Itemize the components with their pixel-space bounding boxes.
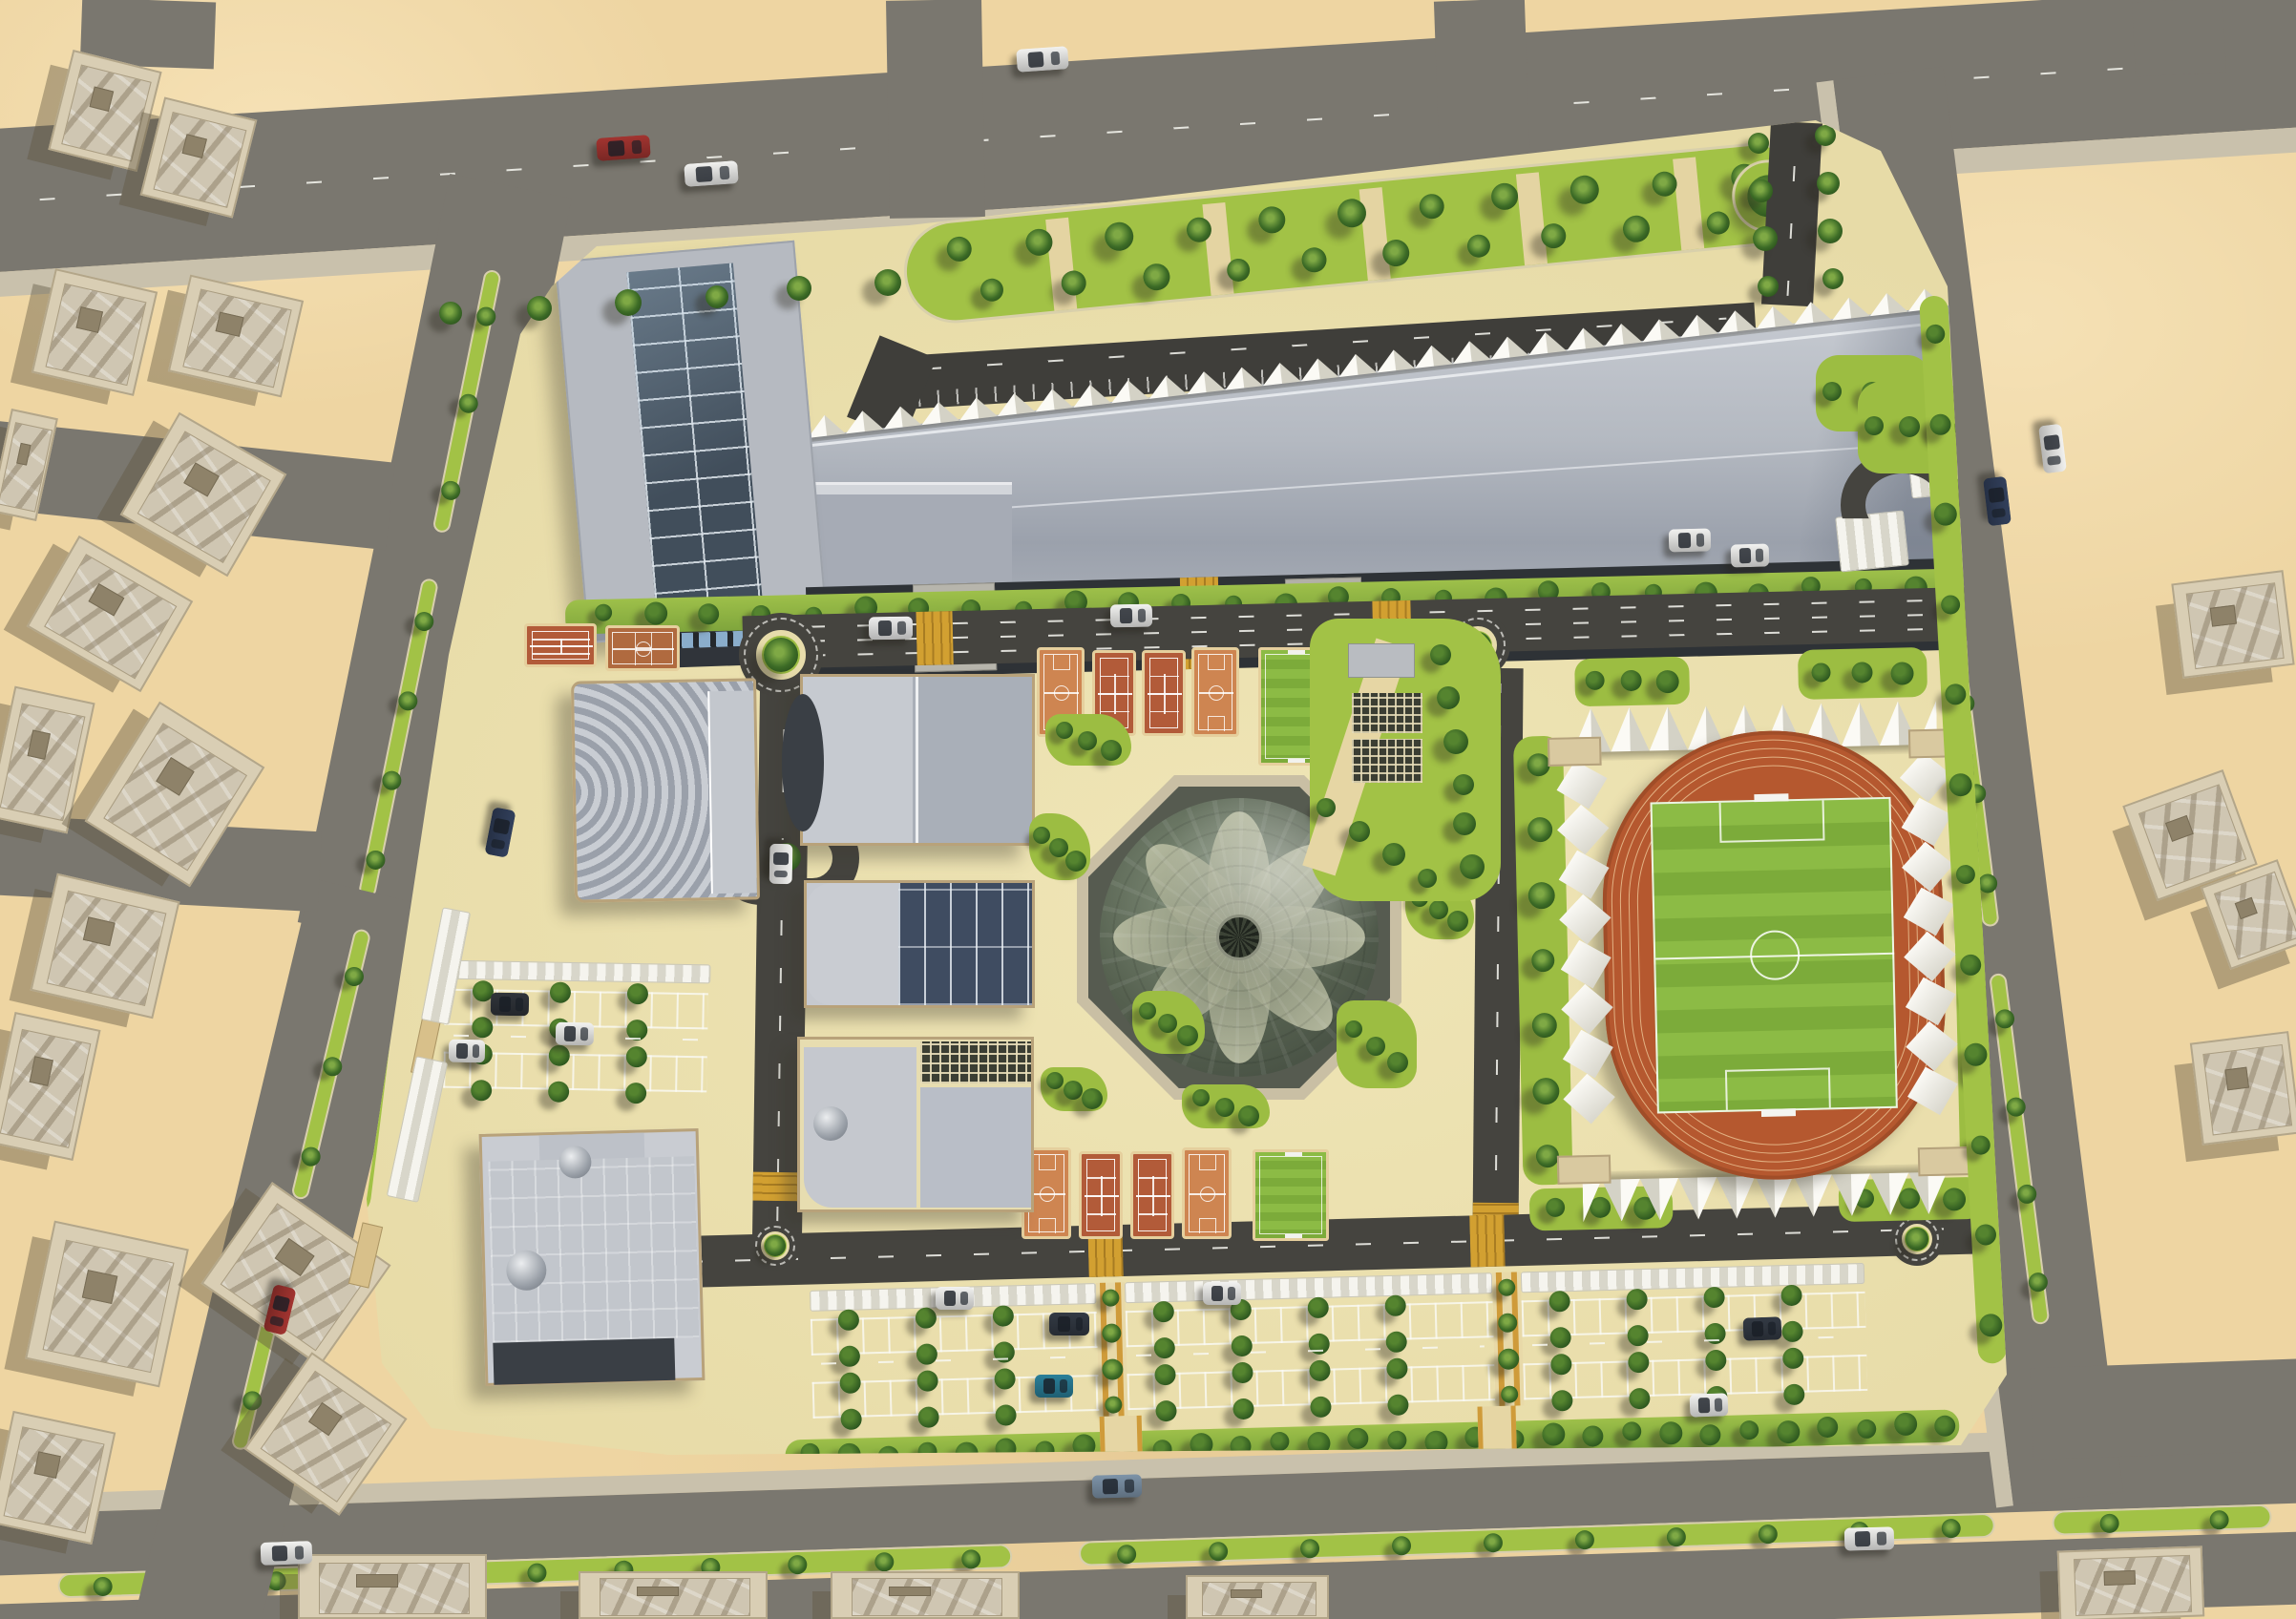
tree [1101, 740, 1122, 761]
tree [626, 1046, 647, 1067]
palm-tree [1527, 881, 1555, 909]
auditorium-fan-roof [571, 678, 760, 902]
curved-west-facade [782, 694, 824, 831]
tree [1139, 1002, 1156, 1020]
car-glass [960, 1292, 967, 1305]
tree [1453, 812, 1476, 835]
tree [1447, 911, 1468, 932]
court-key [1039, 1155, 1056, 1170]
court-serviceline [1139, 1213, 1168, 1215]
roof-hatch [1231, 1589, 1262, 1598]
tree [1033, 827, 1050, 844]
tree [1382, 843, 1405, 866]
car-glass [491, 839, 505, 851]
court-lines [1086, 1159, 1115, 1231]
tree [1232, 1362, 1253, 1384]
car-glass [1988, 487, 2005, 503]
palm-tree [960, 1549, 980, 1569]
car-glass [516, 998, 522, 1011]
roof-seam [916, 677, 918, 843]
tree [1783, 1384, 1805, 1406]
tree [1443, 729, 1468, 754]
football-pitch [1651, 797, 1898, 1114]
palm-tree [1300, 1539, 1320, 1559]
court-lines [532, 631, 589, 660]
tree [1780, 1285, 1802, 1307]
car [449, 1040, 485, 1063]
roof-hatch [34, 1451, 62, 1479]
palm-tree [1575, 1530, 1595, 1550]
stadium-pavilion [1918, 1146, 1972, 1176]
tree [800, 1443, 820, 1463]
lot-divider-walkway [1096, 1282, 1128, 1417]
garden-walkway [1673, 158, 1704, 251]
garden-walkway [1045, 218, 1077, 311]
car [1049, 1313, 1089, 1335]
district-building [25, 1221, 189, 1388]
tree [1155, 1400, 1177, 1422]
palm-tree [2099, 1514, 2119, 1534]
car-glass [499, 997, 511, 1012]
car [1092, 1474, 1143, 1498]
pitch-centercircle [1750, 930, 1801, 980]
tree [1192, 1089, 1210, 1106]
court-key [635, 633, 652, 648]
parking-stall-row [1522, 1292, 1866, 1336]
tree [1072, 1434, 1096, 1458]
car-glass [1058, 1316, 1070, 1332]
tree [1238, 1105, 1259, 1126]
tree [1899, 1188, 1920, 1209]
tree [1551, 1390, 1573, 1412]
garden-kiosk [1348, 643, 1415, 678]
palm-tree [1818, 219, 1843, 243]
tree [1705, 1350, 1727, 1372]
tree [627, 983, 648, 1004]
car-glass [294, 1545, 304, 1559]
tree [1366, 1037, 1385, 1056]
car-glass [493, 818, 511, 835]
roof-panels [488, 1156, 699, 1343]
district-roof [2074, 1555, 2192, 1615]
tree [1822, 382, 1842, 401]
tree [644, 601, 668, 625]
court-lines [1138, 1159, 1167, 1231]
tree [1622, 1421, 1642, 1441]
tree [1941, 595, 1961, 615]
tree [1460, 854, 1485, 879]
tennis-court [1130, 1151, 1174, 1239]
tree [1857, 1419, 1877, 1440]
aerial-site-plan [0, 0, 2296, 1619]
tree [471, 1080, 492, 1101]
car-glass [1696, 534, 1704, 547]
court-key [635, 650, 652, 665]
tree [1955, 865, 1975, 885]
running-track [1599, 727, 1949, 1184]
court-serviceline [533, 639, 590, 641]
car-glass [580, 1027, 587, 1041]
car-glass [608, 140, 625, 157]
car [491, 993, 529, 1017]
tree [1064, 1081, 1083, 1100]
district-building [831, 1571, 1020, 1619]
tree [1960, 954, 1982, 976]
tree [1620, 670, 1641, 691]
tennis-court [1079, 1151, 1123, 1239]
roof-hatch [2225, 1067, 2249, 1090]
stadium-garden [1574, 657, 1690, 707]
tree [1310, 1397, 1332, 1419]
district-roof [2138, 784, 2246, 889]
palm-tree [874, 1552, 895, 1572]
pitch-goal [1761, 1108, 1796, 1117]
court-serviceline [1087, 1177, 1116, 1179]
tree [993, 1305, 1015, 1327]
district-roof [2203, 1044, 2292, 1136]
roof-hatch [82, 1271, 117, 1305]
district-roof [46, 284, 147, 386]
court-serviceline [1152, 1176, 1154, 1217]
trellis-block [1352, 693, 1422, 733]
car-glass [272, 1294, 290, 1312]
tree [548, 1082, 569, 1103]
penalty-box [1725, 1067, 1831, 1109]
tree [1190, 1433, 1213, 1457]
tree [1082, 1088, 1103, 1109]
tree [1158, 1014, 1177, 1033]
car-glass [631, 140, 642, 155]
southwest-hall [479, 1128, 706, 1386]
pitch-goal [1288, 759, 1305, 763]
court-serviceline [1101, 676, 1129, 678]
car [1690, 1393, 1729, 1417]
tennis-court [524, 623, 597, 667]
district-roof [0, 1029, 91, 1148]
tree [1387, 1394, 1409, 1416]
tree [955, 1441, 979, 1465]
palm-tree [1941, 1519, 1961, 1539]
car [2038, 424, 2067, 474]
palm-tree [1484, 1533, 1504, 1553]
roof-hatch [2210, 605, 2237, 627]
palm-tree [1706, 210, 1731, 235]
palm-tree [787, 276, 811, 301]
car-glass [1125, 1480, 1134, 1493]
parking-canopy [1521, 1263, 1864, 1293]
tennis-court [1142, 650, 1186, 736]
palm-tree [527, 296, 552, 321]
court-key [1208, 655, 1225, 670]
palm-tree [439, 302, 462, 325]
district-roof [2214, 872, 2296, 960]
tree [1948, 772, 1972, 796]
car-glass [1739, 548, 1751, 563]
skylight-west-wing [555, 241, 828, 643]
tree [1626, 1289, 1648, 1311]
training-pitch [1253, 1149, 1329, 1241]
tree [550, 982, 571, 1003]
district-roof [4, 1426, 105, 1533]
palm-tree [874, 269, 901, 296]
car-glass [1027, 52, 1043, 68]
roof-hatch [356, 1574, 398, 1587]
tree [1542, 1422, 1566, 1446]
court-serviceline [1101, 1176, 1103, 1217]
court-serviceline [533, 653, 590, 655]
car [1743, 1316, 1782, 1340]
tree [1386, 1358, 1408, 1380]
palm-tree [1532, 1077, 1560, 1104]
palm-tree [1498, 1348, 1520, 1370]
ne-shade-canopy [1835, 510, 1909, 572]
plaza-garden [1029, 813, 1090, 880]
palm-tree [1621, 215, 1651, 244]
parking-stall-row [1127, 1364, 1495, 1410]
indoor-hall-west [800, 674, 1035, 846]
car-glass [1991, 508, 2006, 518]
car-glass [1120, 608, 1132, 623]
tree [1970, 1135, 1991, 1155]
court-lines [1198, 654, 1232, 730]
palm-tree [1532, 1013, 1558, 1039]
car-glass [1076, 1317, 1084, 1331]
tree [1154, 1364, 1176, 1386]
palm-tree [1104, 221, 1135, 252]
car-glass [1768, 1322, 1776, 1335]
tree [1387, 1431, 1407, 1451]
roof-hatch [889, 1587, 931, 1596]
car-glass [272, 1545, 288, 1562]
tree [1699, 1424, 1721, 1446]
penalty-box [1719, 800, 1825, 842]
roof-light [807, 883, 898, 1005]
tree [877, 1445, 899, 1467]
road-stub [2132, 0, 2226, 76]
court-centercircle [1209, 685, 1224, 701]
road-stub [886, 0, 985, 219]
tree [698, 603, 719, 624]
court-serviceline [1150, 711, 1179, 713]
palm-tree [1257, 205, 1287, 235]
tree [625, 1083, 646, 1104]
hall-with-pergola [797, 1037, 1034, 1212]
roof-block [707, 690, 757, 894]
car [1110, 604, 1152, 628]
palm-tree [1753, 226, 1778, 251]
palm-tree [979, 278, 1004, 303]
tree [1964, 1042, 1988, 1066]
car-glass [696, 166, 713, 182]
palm-tree [94, 1577, 114, 1597]
district-roof [44, 554, 178, 679]
tree [1230, 1436, 1252, 1458]
palm-tree [1142, 263, 1171, 292]
tree [1582, 1425, 1604, 1447]
car [1035, 1375, 1073, 1398]
car [1016, 46, 1069, 73]
car-glass [897, 621, 906, 635]
car [1731, 543, 1770, 567]
tree [1270, 1432, 1290, 1452]
car-glass [1715, 1398, 1722, 1412]
tree [1629, 1388, 1651, 1410]
tree [1659, 1421, 1683, 1445]
palm-tree [788, 1555, 808, 1575]
tree [1934, 1416, 1956, 1438]
tree [1894, 1413, 1918, 1437]
car-glass [1677, 533, 1691, 548]
tree [1703, 1287, 1725, 1309]
car [1983, 476, 2012, 527]
palm-tree [1758, 276, 1779, 297]
tree [1309, 1360, 1331, 1382]
tree [995, 1404, 1017, 1426]
tree [1548, 1291, 1570, 1313]
district-building [0, 686, 95, 834]
tree [1777, 1420, 1801, 1444]
car-glass [1103, 1479, 1118, 1494]
lot-divider-walkway [1492, 1272, 1525, 1406]
tree [1864, 416, 1884, 435]
court-key [1199, 1155, 1216, 1170]
court-centercircle [1200, 1187, 1215, 1202]
car [869, 617, 913, 641]
tree [1851, 662, 1872, 683]
car-glass [944, 1291, 956, 1306]
basketball-court [1191, 647, 1239, 737]
tree [1979, 1314, 2003, 1337]
district-roof [600, 1578, 750, 1616]
tree [1152, 1440, 1172, 1460]
tree [840, 1408, 862, 1430]
tree [1349, 821, 1370, 842]
tree [1153, 1301, 1175, 1323]
car-glass [2043, 434, 2060, 451]
court-key [1053, 655, 1070, 670]
garden-walkway [1516, 172, 1548, 265]
tree [839, 1373, 861, 1395]
court-lines [1149, 658, 1178, 728]
stadium-west-green [1513, 736, 1573, 1186]
court-key [1199, 1218, 1216, 1233]
roof-slab [920, 1087, 1031, 1208]
district-roof [61, 64, 152, 161]
tree [1945, 683, 1967, 705]
car-glass [473, 1044, 479, 1058]
palm-tree [1102, 1358, 1124, 1380]
palm-tree [1759, 1524, 1779, 1545]
tree [1585, 671, 1604, 690]
garden-walkway [1202, 202, 1233, 296]
palm-tree [1531, 949, 1555, 973]
tree [1817, 1417, 1839, 1439]
tree [1056, 722, 1073, 739]
district-roof [319, 1563, 470, 1614]
car-glass [773, 852, 789, 865]
garden-walkway [1359, 187, 1391, 281]
district-roof [43, 1239, 174, 1373]
palm-tree [2209, 1510, 2229, 1530]
roof-navy-panels [898, 883, 1032, 1005]
car-glass [456, 1043, 468, 1059]
tree [1347, 1428, 1369, 1450]
palm-tree [1300, 246, 1327, 273]
palm-tree [1209, 1542, 1229, 1562]
training-hall-mid [804, 880, 1035, 1008]
car-glass [1043, 1378, 1055, 1394]
car-glass [1211, 1286, 1223, 1301]
tree [1655, 669, 1679, 693]
court-serviceline [560, 639, 562, 655]
lane-dashes [821, 1356, 1088, 1364]
palm-tree [1419, 193, 1445, 220]
tree [1307, 1297, 1329, 1319]
court-centercircle [1040, 1187, 1055, 1202]
pitch-goal [1288, 650, 1305, 654]
plaza-garden [1182, 1084, 1270, 1128]
car-glass [1877, 1532, 1886, 1545]
stadium-pavilion [1548, 737, 1602, 767]
court-centercircle [1054, 685, 1069, 701]
plaza-garden [1337, 1000, 1417, 1088]
district-building [2171, 570, 2294, 679]
court-lines [612, 632, 673, 664]
tree [1943, 1188, 1967, 1211]
car-glass [1050, 52, 1061, 66]
pitch-goal [1285, 1234, 1302, 1238]
tree [1035, 1440, 1055, 1461]
tree [1429, 900, 1448, 919]
plaza-garden [1041, 1067, 1107, 1111]
car [1844, 1526, 1895, 1550]
car [936, 1287, 974, 1310]
car-glass [564, 1026, 576, 1041]
car [261, 1541, 313, 1566]
car-glass [2047, 455, 2061, 466]
crosswalk [753, 1172, 803, 1202]
silver-dome [813, 1106, 848, 1141]
roof-hatch [637, 1587, 679, 1596]
car-glass [1698, 1398, 1711, 1413]
tree [1078, 731, 1097, 750]
tree [1215, 1098, 1234, 1117]
tree [917, 1441, 937, 1461]
car [1203, 1282, 1241, 1305]
car-glass [774, 871, 788, 878]
car-glass [719, 166, 729, 180]
tree [1739, 1420, 1759, 1440]
tree [595, 604, 612, 621]
tree [1933, 502, 1957, 526]
dark-south-wing [493, 1338, 675, 1385]
tree [1782, 1348, 1804, 1370]
tree [1345, 1020, 1362, 1038]
roof-step [539, 1133, 645, 1161]
dome-center-medallion [1216, 915, 1262, 960]
car-glass [269, 1315, 284, 1327]
court-key [1208, 716, 1225, 731]
tree [1550, 1354, 1572, 1376]
south-parking-lots [780, 1225, 1998, 1481]
tree [1437, 686, 1460, 709]
district-building [579, 1571, 768, 1619]
district-building [1186, 1575, 1329, 1619]
palm-tree [1226, 258, 1251, 283]
tree [995, 1438, 1017, 1460]
tree [1926, 324, 1946, 344]
stadium-pavilion [1557, 1155, 1611, 1185]
